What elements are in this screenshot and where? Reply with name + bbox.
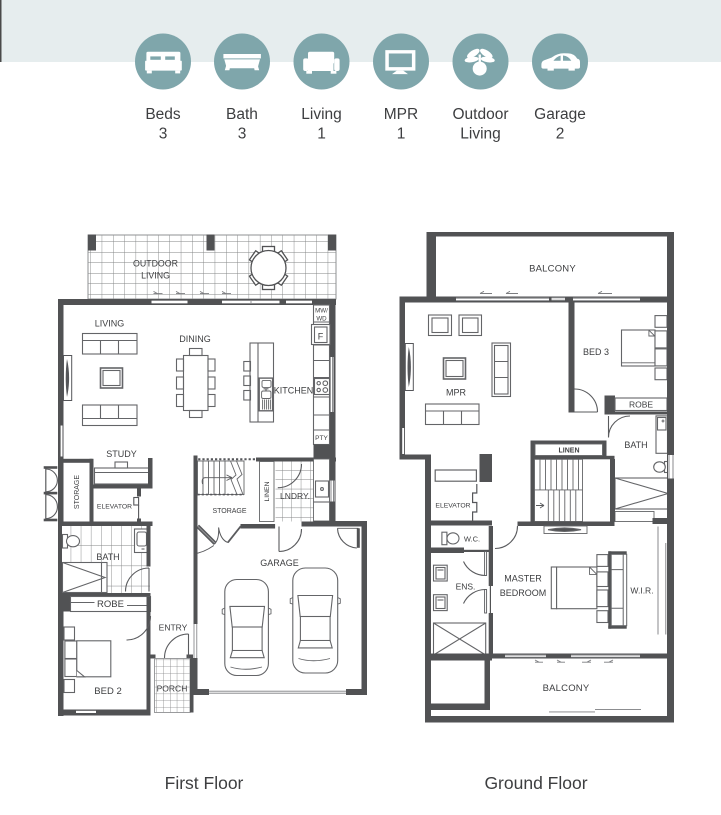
svg-text:Beds: Beds	[145, 106, 181, 123]
svg-text:BEDROOM: BEDROOM	[500, 588, 547, 598]
svg-text:ENTRY: ENTRY	[159, 623, 188, 633]
svg-text:1: 1	[397, 126, 406, 143]
svg-text:PORCH: PORCH	[157, 684, 188, 694]
svg-text:ELEVATOR: ELEVATOR	[435, 502, 470, 509]
svg-text:ROBE: ROBE	[629, 400, 653, 410]
svg-text:STORAGE: STORAGE	[212, 508, 246, 515]
svg-text:1: 1	[317, 126, 326, 143]
svg-text:MW/: MW/	[315, 308, 328, 315]
svg-text:LINEN: LINEN	[559, 447, 580, 454]
svg-text:BED 3: BED 3	[583, 347, 609, 357]
svg-text:ELEVATOR: ELEVATOR	[97, 504, 132, 511]
svg-text:GARAGE: GARAGE	[260, 558, 299, 568]
svg-text:BATH: BATH	[624, 440, 647, 450]
svg-text:LIVING: LIVING	[95, 319, 125, 329]
svg-text:STUDY: STUDY	[106, 449, 137, 459]
svg-text:MPR: MPR	[446, 388, 467, 398]
svg-text:Ground Floor: Ground Floor	[484, 773, 587, 793]
svg-text:ENS.: ENS.	[456, 582, 476, 592]
svg-text:DINING: DINING	[179, 334, 211, 344]
svg-text:2: 2	[556, 126, 565, 143]
svg-text:WD: WD	[316, 316, 327, 323]
svg-text:Outdoor: Outdoor	[452, 106, 508, 123]
svg-text:Living: Living	[460, 126, 501, 143]
svg-text:KITCHEN: KITCHEN	[274, 386, 314, 396]
svg-text:3: 3	[159, 126, 168, 143]
svg-text:LINEN: LINEN	[264, 481, 271, 501]
svg-text:BALCONY: BALCONY	[543, 683, 590, 694]
svg-text:OUTDOOR: OUTDOOR	[133, 259, 178, 269]
svg-text:PTY: PTY	[315, 435, 328, 442]
svg-text:F: F	[318, 332, 324, 342]
svg-text:LNDRY.: LNDRY.	[280, 491, 310, 501]
svg-text:Garage: Garage	[534, 106, 586, 123]
svg-text:ROBE: ROBE	[97, 599, 124, 610]
svg-text:MPR: MPR	[384, 106, 418, 123]
svg-text:LIVING: LIVING	[141, 271, 170, 281]
svg-text:3: 3	[238, 126, 247, 143]
svg-text:BATH: BATH	[96, 552, 119, 562]
svg-text:BED 2: BED 2	[94, 686, 121, 697]
svg-text:BALCONY: BALCONY	[529, 264, 576, 275]
svg-text:STORAGE: STORAGE	[74, 475, 81, 509]
svg-text:W.I.R.: W.I.R.	[630, 586, 653, 596]
svg-text:MASTER: MASTER	[504, 574, 542, 584]
svg-text:First Floor: First Floor	[165, 773, 244, 793]
svg-text:Living: Living	[301, 106, 342, 123]
svg-text:W.C.: W.C.	[464, 535, 480, 544]
svg-text:Bath: Bath	[226, 106, 258, 123]
